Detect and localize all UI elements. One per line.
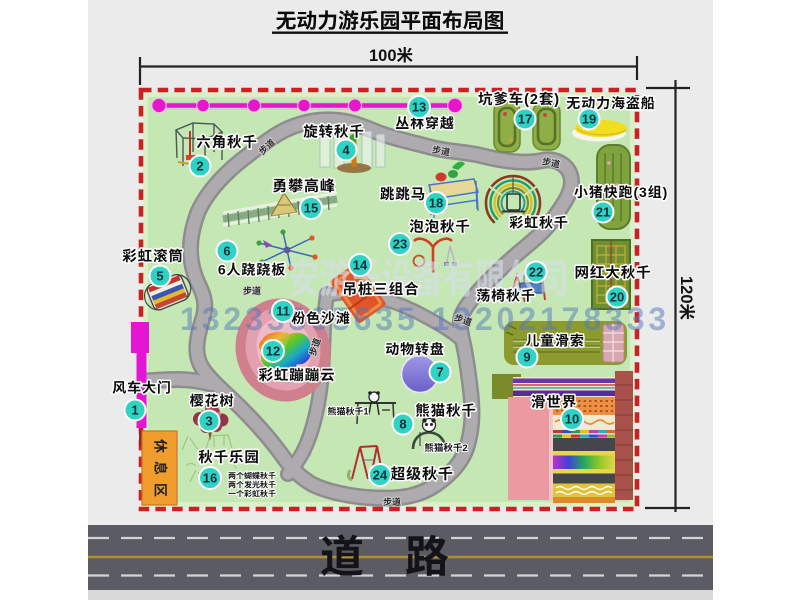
svg-text:15: 15 bbox=[304, 198, 318, 217]
svg-text:网红大秋千: 网红大秋千 bbox=[575, 262, 652, 283]
svg-text:9: 9 bbox=[523, 347, 530, 366]
svg-text:12: 12 bbox=[266, 341, 280, 360]
svg-text:10: 10 bbox=[565, 409, 579, 428]
svg-text:熊猫秋千2: 熊猫秋千2 bbox=[424, 440, 467, 454]
svg-text:14: 14 bbox=[353, 255, 368, 274]
svg-text:1: 1 bbox=[131, 400, 138, 419]
svg-text:3: 3 bbox=[205, 411, 212, 430]
svg-text:步道: 步道 bbox=[243, 284, 261, 297]
svg-text:小猪快跑(3组): 小猪快跑(3组) bbox=[574, 182, 668, 202]
svg-text:13233805635 13202178333: 13233805635 13202178333 bbox=[180, 294, 670, 340]
svg-text:4: 4 bbox=[342, 140, 350, 159]
svg-text:彩虹滚筒: 彩虹滚筒 bbox=[122, 245, 184, 266]
svg-text:樱花树: 樱花树 bbox=[190, 391, 235, 411]
svg-text:8: 8 bbox=[399, 414, 406, 433]
svg-text:跳跳马: 跳跳马 bbox=[380, 183, 426, 204]
svg-text:风车大门: 风车大门 bbox=[112, 378, 172, 398]
svg-text:步道: 步道 bbox=[383, 495, 401, 508]
svg-text:6: 6 bbox=[223, 241, 230, 260]
svg-text:2: 2 bbox=[196, 156, 203, 175]
svg-text:吊桩三组合: 吊桩三组合 bbox=[343, 278, 420, 299]
svg-text:5: 5 bbox=[156, 266, 163, 285]
svg-text:20: 20 bbox=[610, 287, 624, 306]
svg-text:彩虹蹦蹦云: 彩虹蹦蹦云 bbox=[259, 364, 336, 385]
svg-text:一个彩虹秋千: 一个彩虹秋千 bbox=[228, 489, 276, 500]
svg-text:22: 22 bbox=[529, 262, 543, 281]
svg-text:儿童滑索: 儿童滑索 bbox=[525, 331, 585, 351]
svg-text:勇攀高峰: 勇攀高峰 bbox=[272, 175, 336, 196]
svg-text:超级秋千: 超级秋千 bbox=[390, 463, 454, 484]
svg-text:24: 24 bbox=[373, 465, 388, 484]
svg-text:6人跷跷板: 6人跷跷板 bbox=[218, 260, 286, 280]
svg-text:泡泡秋千: 泡泡秋千 bbox=[409, 216, 471, 237]
svg-text:13: 13 bbox=[412, 97, 426, 116]
svg-text:11: 11 bbox=[276, 301, 290, 320]
svg-text:7: 7 bbox=[436, 362, 443, 381]
svg-text:熊猫秋千1: 熊猫秋千1 bbox=[327, 405, 368, 418]
svg-text:彩虹秋千: 彩虹秋千 bbox=[509, 213, 569, 233]
svg-text:21: 21 bbox=[596, 202, 610, 221]
svg-text:旋转秋千: 旋转秋千 bbox=[303, 121, 365, 142]
svg-text:区: 区 bbox=[151, 483, 171, 497]
svg-text:息: 息 bbox=[151, 461, 171, 475]
svg-text:荡椅秋千: 荡椅秋千 bbox=[476, 286, 536, 306]
svg-text:熊猫秋千: 熊猫秋千 bbox=[415, 400, 477, 421]
svg-text:道路: 道路 bbox=[320, 521, 490, 585]
svg-text:六角秋千: 六角秋千 bbox=[196, 131, 258, 152]
svg-text:粉色沙滩: 粉色沙滩 bbox=[291, 308, 351, 328]
svg-text:秋千乐园: 秋千乐园 bbox=[198, 446, 260, 467]
svg-text:休: 休 bbox=[151, 439, 171, 453]
svg-text:坑爹车(2套): 坑爹车(2套) bbox=[478, 88, 560, 109]
svg-text:17: 17 bbox=[518, 109, 532, 128]
svg-text:23: 23 bbox=[393, 234, 407, 253]
svg-text:19: 19 bbox=[582, 109, 596, 128]
svg-text:无动力游乐园平面布局图: 无动力游乐园平面布局图 bbox=[276, 4, 505, 34]
svg-text:120米: 120米 bbox=[676, 276, 700, 321]
svg-text:16: 16 bbox=[203, 468, 217, 487]
svg-text:动物转盘: 动物转盘 bbox=[385, 339, 445, 359]
svg-text:100米: 100米 bbox=[369, 42, 414, 66]
svg-text:无动力海盗船: 无动力海盗船 bbox=[566, 93, 655, 113]
svg-text:18: 18 bbox=[429, 193, 443, 212]
